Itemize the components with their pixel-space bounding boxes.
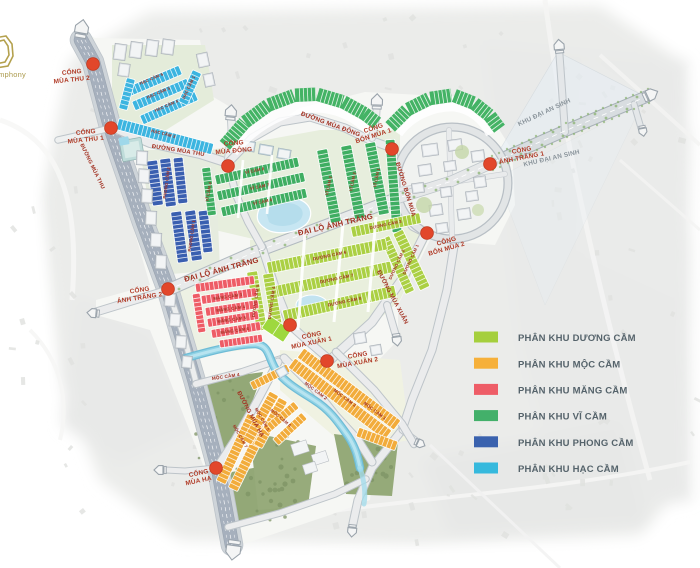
svg-text:PHÂN KHU HẠC CẦM: PHÂN KHU HẠC CẦM (518, 463, 619, 475)
svg-text:PHÂN KHU MỘC CẦM: PHÂN KHU MỘC CẦM (518, 358, 620, 370)
svg-text:PHÂN KHU DƯƠNG CẦM: PHÂN KHU DƯƠNG CẦM (518, 332, 636, 344)
svg-text:PHÂN KHU MĂNG CẦM: PHÂN KHU MĂNG CẦM (518, 385, 627, 397)
svg-text:PHÂN KHU VĨ CẦM: PHÂN KHU VĨ CẦM (518, 411, 607, 423)
svg-text:PHÂN KHU PHONG CẦM: PHÂN KHU PHONG CẦM (518, 437, 634, 449)
svg-text:mphony: mphony (0, 70, 26, 79)
